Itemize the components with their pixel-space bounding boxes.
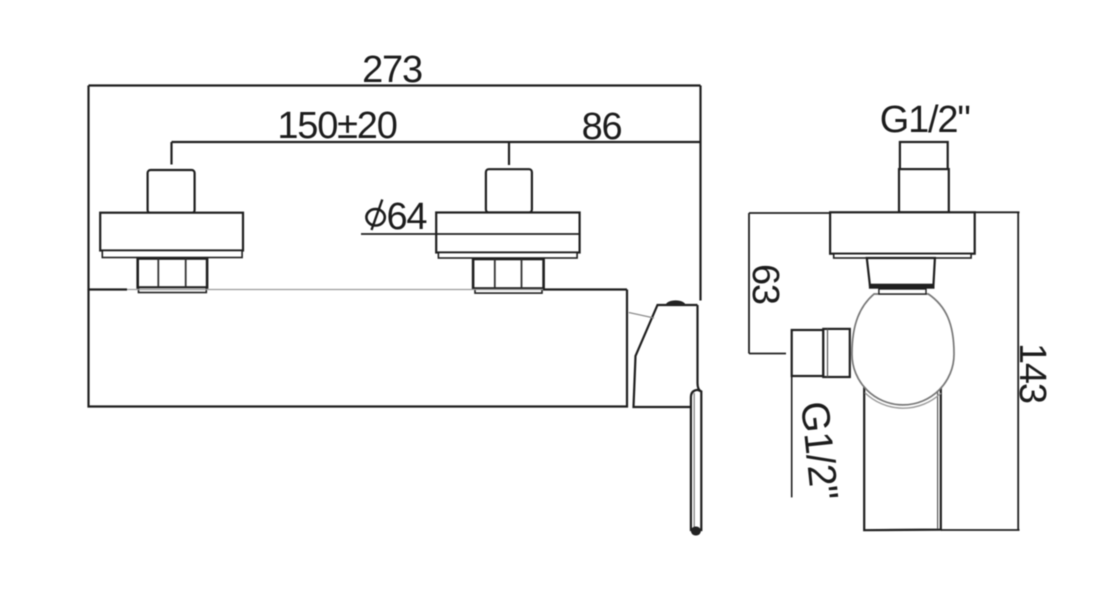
svg-text:64: 64: [387, 196, 428, 238]
svg-text:63: 63: [744, 264, 786, 304]
svg-text:G1/2": G1/2": [792, 399, 846, 502]
svg-text:273: 273: [362, 49, 422, 91]
svg-text:150±20: 150±20: [277, 105, 396, 147]
svg-text:86: 86: [582, 106, 622, 148]
svg-text:G1/2": G1/2": [880, 99, 970, 141]
svg-text:143: 143: [1011, 343, 1053, 403]
